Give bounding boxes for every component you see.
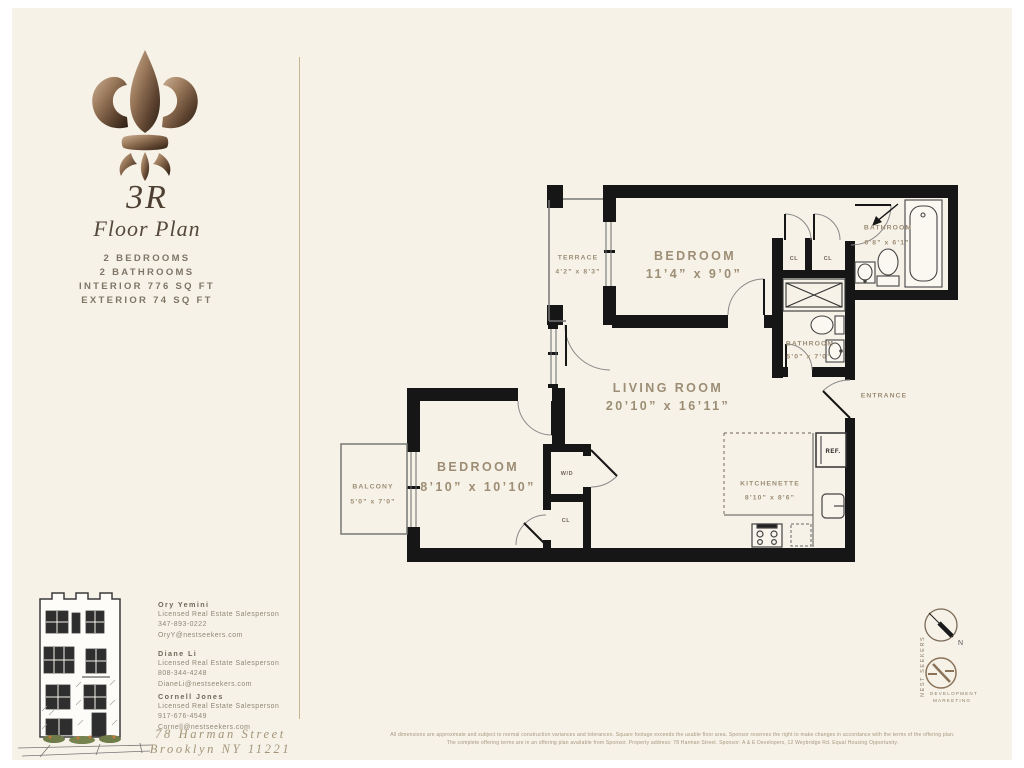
floorplan-sheet: REF. N bbox=[0, 0, 1024, 768]
brand-vertical-label: NEST SEEKERS bbox=[920, 636, 926, 697]
bathroom2-dims: 5’0” x 7’0” bbox=[786, 354, 831, 361]
entrance-label: ENTRANCE bbox=[861, 393, 908, 400]
kitchenette-label: KITCHENETTE bbox=[740, 481, 800, 488]
shaft-x-box bbox=[783, 279, 845, 311]
closet3-label: CL bbox=[562, 518, 571, 524]
balcony-dims: 5’0” x 7’0” bbox=[350, 499, 395, 506]
kitchen-sink-icon bbox=[822, 494, 844, 518]
agent-name: Ory Yemini bbox=[158, 600, 308, 610]
planters bbox=[43, 735, 121, 744]
unit-facts: 2 BEDROOMS 2 BATHROOMS INTERIOR 776 SQ F… bbox=[79, 252, 215, 308]
nestseekers-logo: NEST SEEKERS DEVELOPMENT MARKETING bbox=[920, 636, 978, 703]
bedroom2-label: BEDROOM bbox=[437, 460, 519, 474]
brand-tagline-1: DEVELOPMENT bbox=[930, 691, 978, 696]
brand-tagline-2: MARKETING bbox=[933, 698, 971, 703]
agent-title: Licensed Real Estate Salesperson bbox=[158, 702, 308, 712]
fleur-de-lis-logo bbox=[92, 50, 198, 181]
property-address: 78 Harman Street Brooklyn NY 11221 bbox=[148, 727, 293, 757]
agent-card: Diane Li Licensed Real Estate Salesperso… bbox=[158, 649, 308, 690]
fact-bedrooms: 2 BEDROOMS bbox=[79, 252, 215, 266]
address-line1: 78 Harman Street bbox=[148, 727, 293, 742]
agent-phone: 808-344-4248 bbox=[158, 669, 308, 679]
bedroom2-dims: 8’10” x 10’10” bbox=[420, 480, 536, 494]
agent-title: Licensed Real Estate Salesperson bbox=[158, 610, 308, 620]
agent-name: Diane Li bbox=[158, 649, 308, 659]
fact-interior: INTERIOR 776 SQ FT bbox=[79, 280, 215, 294]
closet1-label: CL bbox=[790, 256, 799, 262]
fact-exterior: EXTERIOR 74 SQ FT bbox=[79, 294, 215, 308]
refrigerator-icon: REF. bbox=[816, 433, 846, 467]
bedroom1-dims: 11’4” x 9’0” bbox=[646, 267, 742, 281]
agent-email[interactable]: DianeLi@nestseekers.com bbox=[158, 680, 308, 690]
living-room-label: LIVING ROOM bbox=[613, 381, 723, 395]
closet2-label: CL bbox=[824, 256, 833, 262]
living-room-dims: 20’10” x 16’11” bbox=[606, 399, 730, 413]
kitchenette-area: REF. bbox=[724, 433, 846, 547]
agent-title: Licensed Real Estate Salesperson bbox=[158, 659, 308, 669]
agent-phone: 347-893-0222 bbox=[158, 620, 308, 630]
bathroom2-label: BATHROOM bbox=[786, 341, 834, 348]
toilet-icon bbox=[878, 249, 898, 275]
agent-name: Cornell Jones bbox=[158, 692, 308, 702]
unit-title: 3R bbox=[126, 179, 168, 217]
legal-disclaimer: All dimensions are approximate and subje… bbox=[360, 732, 985, 747]
compass-icon: N bbox=[925, 609, 963, 647]
bathroom1-label: BATHROOM bbox=[864, 225, 912, 232]
fact-bathrooms: 2 BATHROOMS bbox=[79, 266, 215, 280]
stove-icon bbox=[752, 524, 782, 547]
disclaimer-line1: All dimensions are approximate and subje… bbox=[360, 732, 985, 740]
address-line2: Brooklyn NY 11221 bbox=[148, 742, 293, 757]
balcony-label: BALCONY bbox=[352, 484, 393, 491]
washer-dryer-label: W/D bbox=[561, 471, 574, 477]
agent-card: Ory Yemini Licensed Real Estate Salesper… bbox=[158, 600, 308, 641]
terrace-dims: 4’2” x 8’3” bbox=[555, 269, 600, 276]
entry-arrow bbox=[872, 204, 898, 226]
bathroom1-dims: 6’8” x 6’1” bbox=[864, 240, 909, 247]
agent-phone: 917-676-4549 bbox=[158, 712, 308, 722]
kitchenette-dims: 8’10” x 8’6” bbox=[745, 495, 795, 502]
agent-email[interactable]: OryY@nestseekers.com bbox=[158, 631, 308, 641]
toilet2-icon bbox=[811, 316, 833, 334]
ref-label: REF. bbox=[825, 449, 840, 455]
terrace-label: TERRACE bbox=[558, 255, 599, 262]
disclaimer-line2: The complete offering terms are in an of… bbox=[360, 740, 985, 748]
bedroom1-label: BEDROOM bbox=[654, 249, 736, 263]
floorplan-drawing: REF. N bbox=[0, 0, 1024, 768]
compass-north-label: N bbox=[958, 640, 963, 647]
building-sketch bbox=[18, 593, 152, 757]
dishwasher-icon bbox=[791, 524, 811, 546]
unit-subtitle: Floor Plan bbox=[93, 216, 200, 242]
